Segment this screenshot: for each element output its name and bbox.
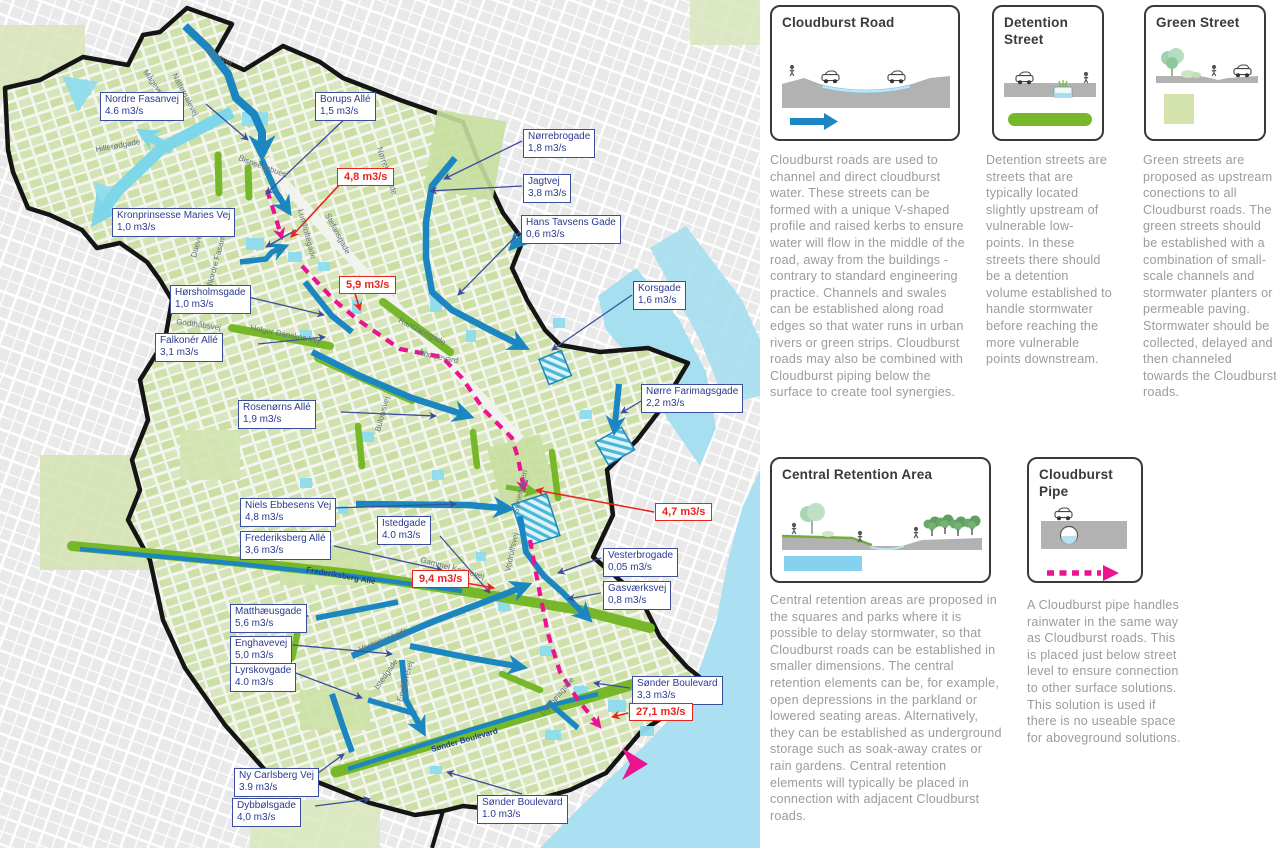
person-icon: [1212, 65, 1216, 76]
map-label: Kronprinsesse Maries Vej1,0 m3/s: [112, 208, 235, 237]
map-label: Nordre Fasanvej4.6 m3/s: [100, 92, 184, 121]
map-label: Ny Carlsberg Vej3.9 m3/s: [234, 768, 319, 797]
legend-text-cloudburst-pipe: A Cloudburst pipe handles rainwater in t…: [1027, 597, 1185, 746]
flow-callout: 4,7 m3/s: [655, 503, 712, 521]
card-title: Detention Street: [1004, 15, 1092, 49]
map-label: Sønder Boulevard3,3 m3/s: [632, 676, 723, 705]
flow-callout: 9,4 m3/s: [412, 570, 469, 588]
legend-card-green-street: Green Street: [1144, 5, 1266, 141]
legend-card-detention-street: Detention Street: [992, 5, 1104, 141]
map-label: Gasværksvej0,8 m3/s: [603, 581, 671, 610]
legend-card-cloudburst-road: Cloudburst Road: [770, 5, 960, 141]
card-title: Cloudburst Road: [782, 15, 948, 32]
map-label: Hans Tavsens Gade0,6 m3/s: [521, 215, 621, 244]
legend-card-central-retention-area: Central Retention Area: [770, 457, 991, 583]
map-label: Dybbølsgade4,0 m3/s: [232, 798, 301, 827]
map-label: Hørsholmsgade1,0 m3/s: [170, 285, 251, 314]
map-label: Borups Allé1,5 m3/s: [315, 92, 376, 121]
map-label: Rosenørns Allé1,9 m3/s: [238, 400, 316, 429]
map-label: Vesterbrogade0,05 m3/s: [603, 548, 678, 577]
map-label: Lyrskovgade4.0 m3/s: [230, 663, 296, 692]
green-street-cross-section: [1156, 32, 1258, 132]
car-icon: [822, 71, 839, 83]
legend-text-central-retention-area: Central retention areas are proposed in …: [770, 592, 1002, 824]
central-retention-marker-icon: [784, 556, 862, 571]
card-title: Green Street: [1156, 15, 1254, 32]
legend-text-cloudburst-road: Cloudburst roads are used to channel and…: [770, 152, 968, 401]
legend-text-detention-street: Detention streets are streets that are t…: [986, 152, 1112, 368]
cloudburst-road-cross-section: [782, 32, 950, 136]
cloudburst-pipe-cross-section: [1039, 501, 1135, 593]
car-icon: [1055, 508, 1072, 520]
cloudburst-pipe-arrowhead-icon: [1103, 565, 1119, 581]
card-title: Central Retention Area: [782, 467, 979, 484]
person-icon: [1084, 72, 1088, 83]
cloudburst-road-arrow-icon: [790, 113, 838, 130]
map-label: Enghavevej5,0 m3/s: [230, 636, 292, 665]
tree-icon: [964, 515, 981, 535]
card-title: Cloudburst Pipe: [1039, 467, 1131, 501]
map-label: Nørre Farimagsgade2,2 m3/s: [641, 384, 743, 413]
legend-card-cloudburst-pipe: Cloudburst Pipe: [1027, 457, 1143, 583]
detention-street-marker-icon: [1008, 113, 1092, 126]
map-label: Sønder Boulevard1.0 m3/s: [477, 795, 568, 824]
car-icon: [1016, 72, 1033, 84]
grass-icon: [1059, 80, 1067, 87]
map-label: Nørrebrogade1,8 m3/s: [523, 129, 595, 158]
detention-street-cross-section: [1004, 49, 1096, 141]
map-label: Jagtvej3,8 m3/s: [523, 174, 571, 203]
legend-panel: Cloudburst Road Detention Street: [760, 0, 1276, 848]
map-label: Istedgade4.0 m3/s: [377, 516, 431, 545]
central-retention-cross-section: [782, 484, 982, 576]
map: Hillerødgade Nattergalevej Ørnevej Mågev…: [0, 0, 760, 848]
flow-callout: 5,9 m3/s: [339, 276, 396, 294]
car-icon: [1234, 65, 1251, 77]
flow-callout: 27,1 m3/s: [629, 703, 693, 721]
map-label: Matthæusgade5,6 m3/s: [230, 604, 307, 633]
car-icon: [888, 71, 905, 83]
person-icon: [914, 527, 918, 538]
map-label: Frederiksberg Allé3,6 m3/s: [240, 531, 331, 560]
legend-text-green-street: Green streets are proposed as upstream c…: [1143, 152, 1276, 401]
map-label: Niels Ebbesens Vej4,8 m3/s: [240, 498, 336, 527]
green-street-marker-icon: [1164, 94, 1194, 124]
cloudburst-plan-page: Hillerødgade Nattergalevej Ørnevej Mågev…: [0, 0, 1276, 848]
person-icon: [792, 523, 796, 534]
person-icon: [790, 65, 794, 76]
map-label: Korsgade1,6 m3/s: [633, 281, 686, 310]
map-label: Falkonér Allé3,1 m3/s: [155, 333, 223, 362]
flow-callout: 4,8 m3/s: [337, 168, 394, 186]
